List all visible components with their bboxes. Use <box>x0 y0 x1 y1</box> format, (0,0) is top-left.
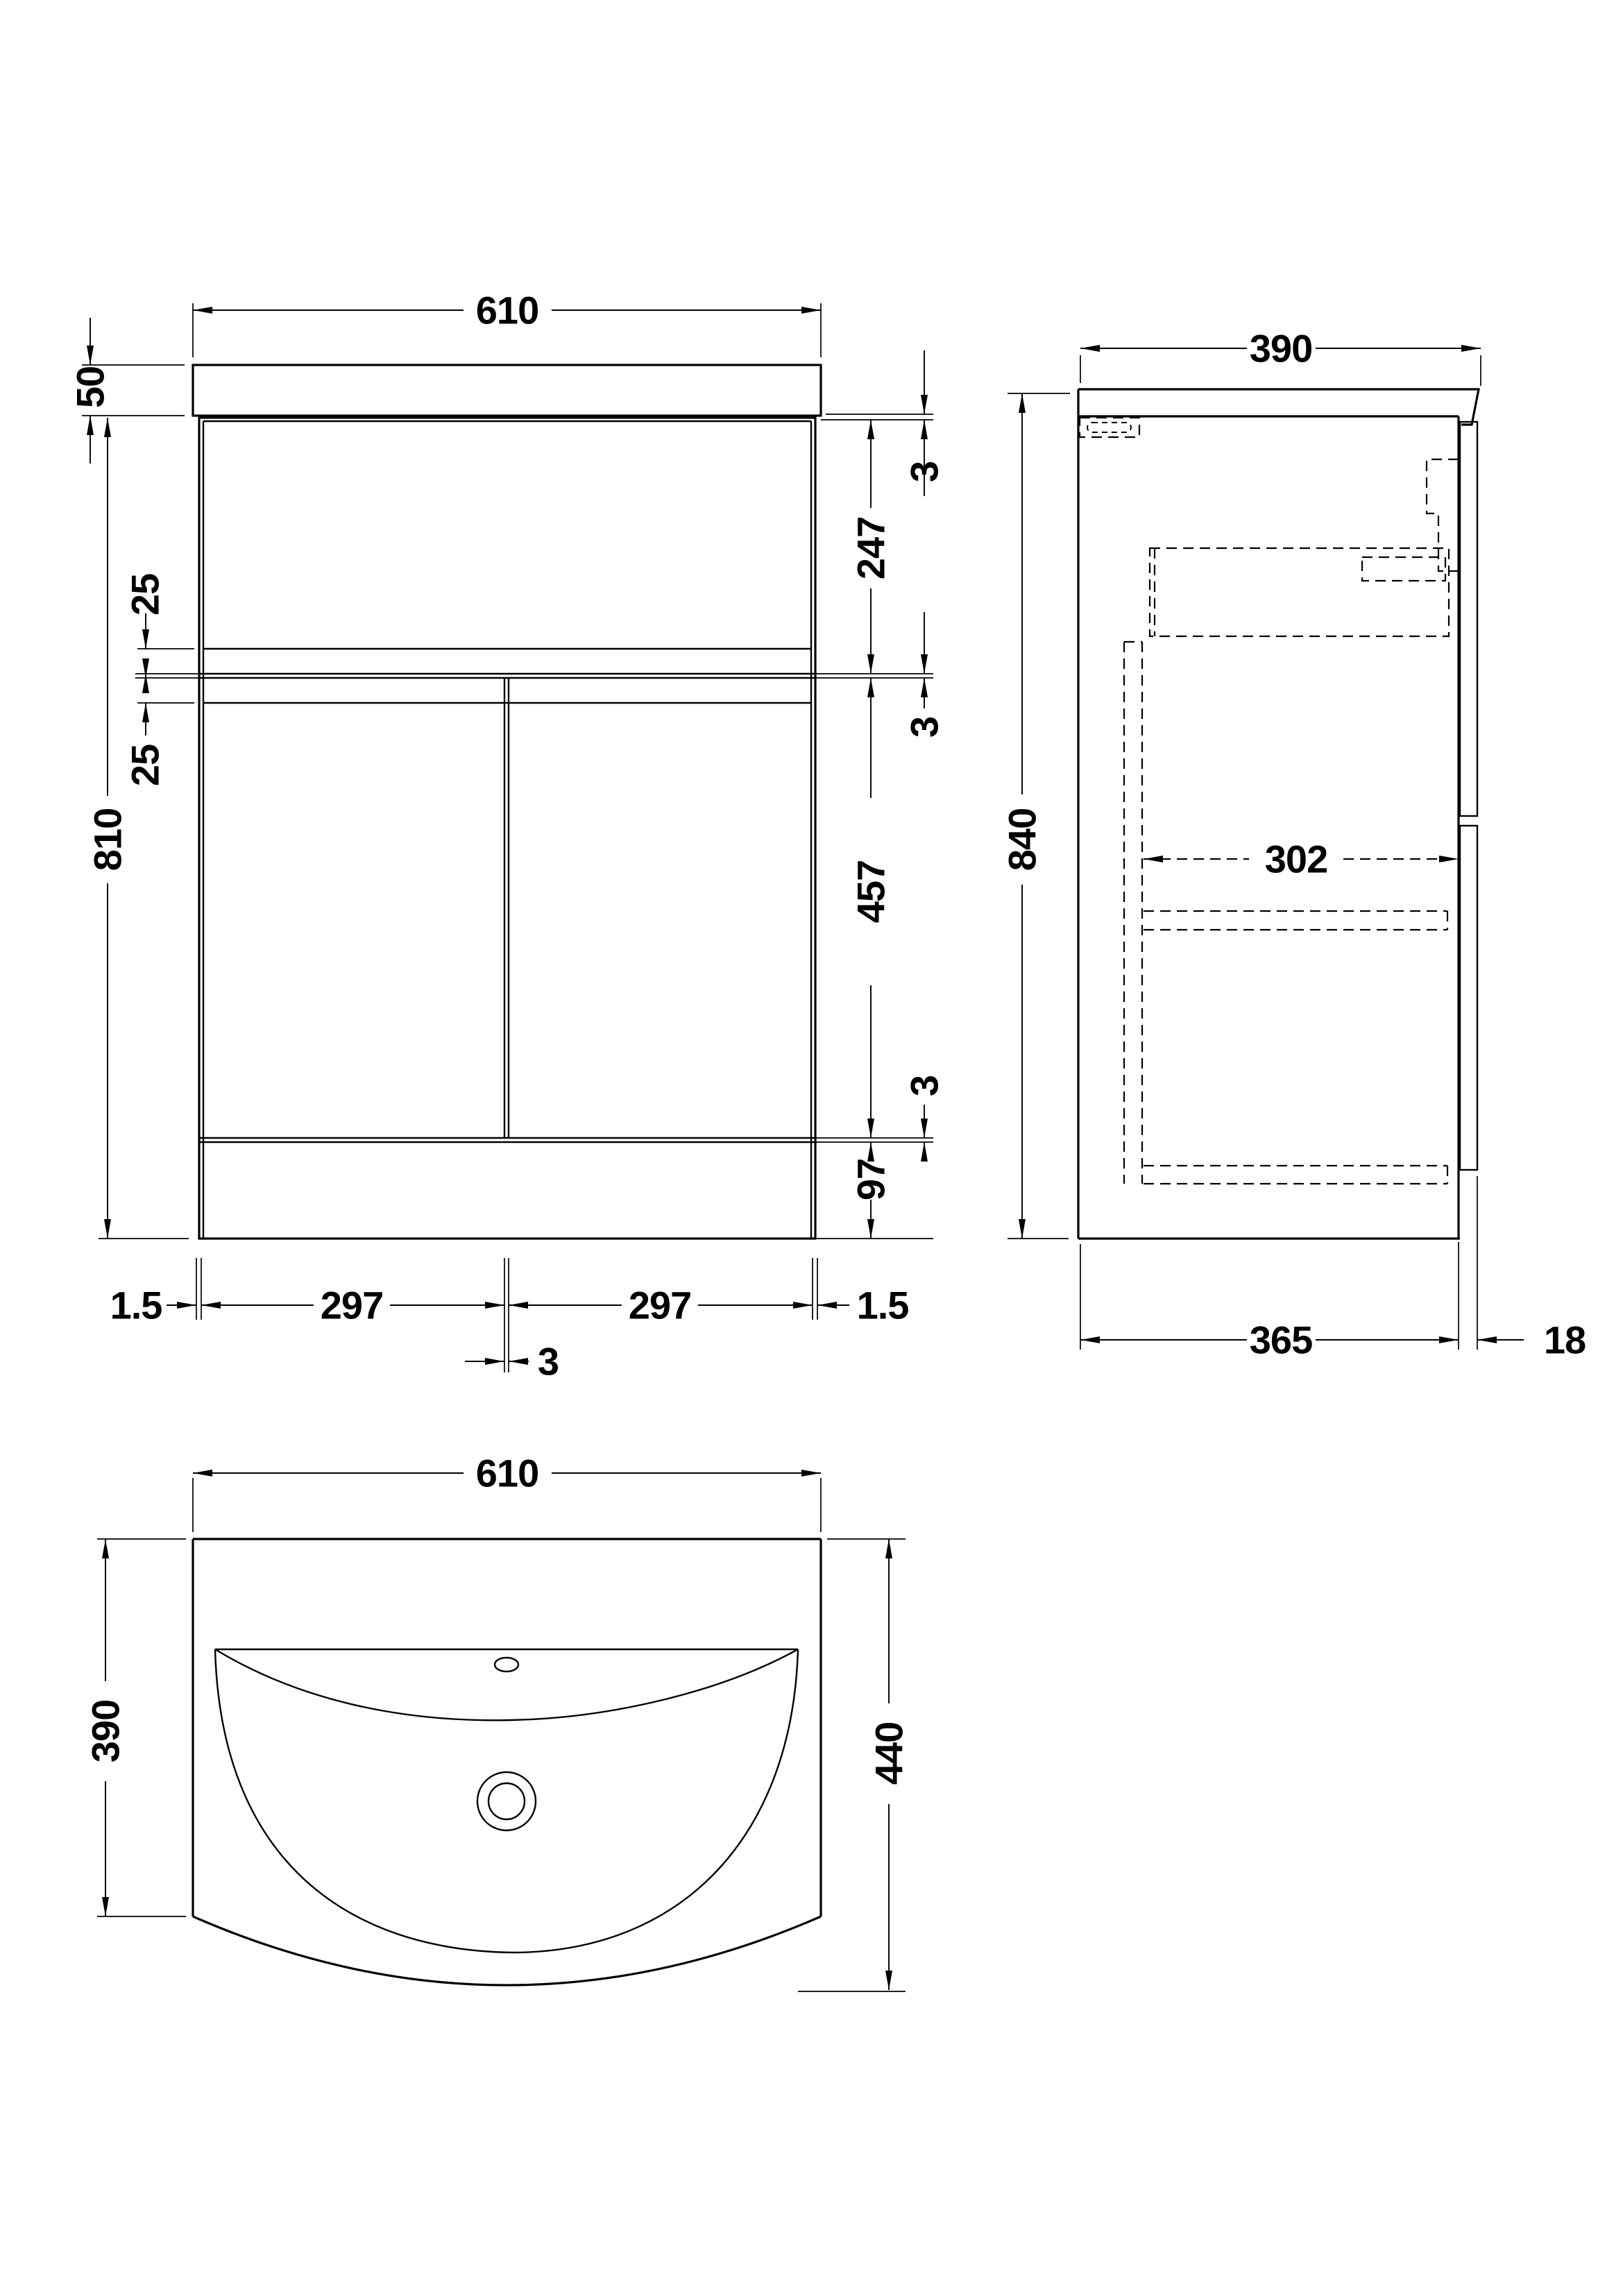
plan-width-dim-label: 610 <box>476 1452 538 1495</box>
side-outline <box>1078 389 1479 1239</box>
front-recess-lower-label: 25 <box>124 745 167 786</box>
plan-worktop-outline <box>193 1539 821 1985</box>
front-height-dim-label: 810 <box>86 808 130 871</box>
side-height-dim-label: 840 <box>1001 808 1044 871</box>
front-plinth-dim-label: 97 <box>849 1159 893 1200</box>
front-door-gap-label: 3 <box>538 1340 559 1384</box>
side-hidden-step <box>1427 459 1459 571</box>
plan-tap-hole <box>495 1658 518 1672</box>
side-hidden-shelf-lower <box>1144 1166 1447 1184</box>
front-bottom-gap-label: 3 <box>903 1075 946 1096</box>
side-hidden-slot <box>1087 423 1131 432</box>
front-recess-upper-label: 25 <box>124 574 167 615</box>
side-hidden-drawer-box <box>1150 548 1449 636</box>
front-drawer-dim-label: 247 <box>849 517 893 579</box>
front-view: 610 50 25 25 810 3 247 3 457 3 97 1.5 29… <box>69 289 946 1384</box>
side-hidden-upright <box>1124 642 1142 1184</box>
plan-basin-outline <box>215 1649 798 1953</box>
front-left-door-dim-label: 297 <box>321 1284 383 1327</box>
front-cabinet <box>199 418 815 1239</box>
plan-extension-lines <box>97 1478 906 1991</box>
side-door-panel <box>1460 826 1477 1170</box>
front-left-margin-label: 1.5 <box>110 1284 162 1327</box>
front-top-gap-label: 3 <box>903 461 946 482</box>
plan-waste-outer <box>477 1772 536 1830</box>
front-right-margin-label: 1.5 <box>857 1284 909 1327</box>
front-worktop-dim-label: 50 <box>69 366 112 408</box>
technical-drawing: 610 50 25 25 810 3 247 3 457 3 97 1.5 29… <box>0 0 1623 2296</box>
front-panel-lines <box>199 421 815 1239</box>
side-hidden-runner <box>1362 557 1445 581</box>
side-hidden-shelf-upper <box>1144 911 1447 930</box>
front-extension-lines <box>82 303 933 1372</box>
side-drawer-front-panel <box>1460 422 1477 816</box>
plan-basin-depth-dim-label: 390 <box>84 1700 128 1762</box>
front-worktop <box>193 365 821 416</box>
side-depth-dim-label: 390 <box>1250 327 1312 371</box>
side-door-thickness-label: 18 <box>1544 1318 1586 1362</box>
front-width-dim-label: 610 <box>476 289 538 332</box>
side-view: 390 840 302 365 18 <box>1001 327 1586 1362</box>
plan-overall-depth-dim-label: 440 <box>867 1722 911 1785</box>
plan-view: 610 390 440 <box>84 1452 911 1992</box>
front-right-door-dim-label: 297 <box>629 1284 691 1327</box>
side-carcass-depth-dim-label: 365 <box>1250 1318 1312 1362</box>
front-mid-gap-label: 3 <box>903 717 946 738</box>
drawing-sheet: 610 50 25 25 810 3 247 3 457 3 97 1.5 29… <box>0 0 1623 2296</box>
side-internal-dim-label: 302 <box>1265 837 1327 881</box>
plan-waste-inner <box>488 1783 525 1819</box>
front-door-height-dim-label: 457 <box>849 860 893 923</box>
